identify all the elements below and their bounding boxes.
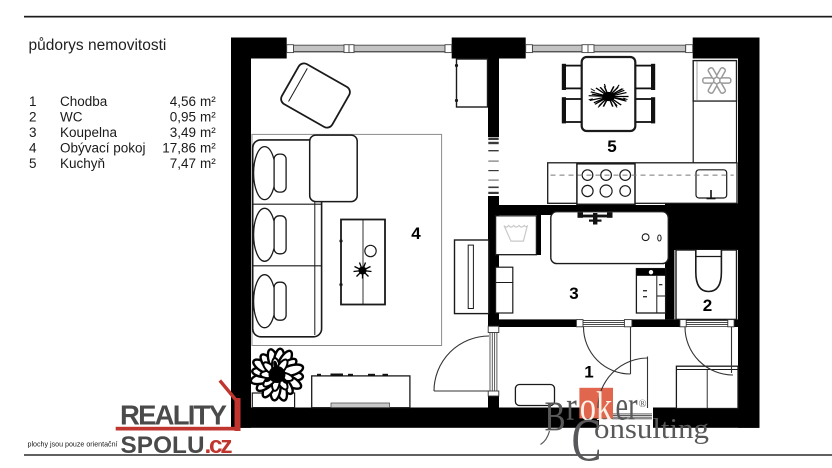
svg-text:Koupelna: Koupelna (60, 125, 118, 140)
svg-text:REALITY: REALITY (120, 400, 227, 431)
svg-text:5: 5 (607, 137, 616, 156)
svg-text:Chodba: Chodba (60, 94, 108, 109)
svg-text:m²: m² (200, 125, 216, 140)
svg-text:3: 3 (569, 284, 578, 303)
svg-text:4: 4 (29, 140, 37, 155)
svg-text:.cz: .cz (205, 432, 233, 459)
svg-text:4: 4 (411, 224, 421, 243)
svg-text:4,56: 4,56 (170, 94, 196, 109)
svg-text:2: 2 (703, 296, 712, 315)
svg-text:1: 1 (29, 94, 37, 109)
svg-text:3,49: 3,49 (170, 125, 196, 140)
svg-text:5: 5 (29, 156, 37, 171)
svg-text:m²: m² (200, 109, 216, 124)
svg-text:1: 1 (584, 363, 593, 382)
svg-text:®: ® (639, 399, 647, 410)
svg-text:SPOLU: SPOLU (121, 432, 205, 459)
svg-text:Kuchyň: Kuchyň (60, 156, 105, 171)
svg-text:17,86: 17,86 (162, 140, 196, 155)
svg-text:plochy jsou pouze orientační: plochy jsou pouze orientační (28, 440, 119, 449)
svg-text:2: 2 (29, 109, 37, 124)
svg-text:WC: WC (60, 109, 83, 124)
svg-text:Obývací pokoj: Obývací pokoj (60, 140, 146, 155)
svg-text:7,47: 7,47 (170, 156, 196, 171)
svg-text:0,95: 0,95 (170, 109, 196, 124)
svg-text:m²: m² (200, 94, 216, 109)
svg-text:B: B (545, 395, 566, 441)
svg-text:onsulting: onsulting (594, 413, 709, 445)
svg-text:půdorys nemovitosti: půdorys nemovitosti (29, 37, 167, 54)
svg-text:3: 3 (29, 125, 37, 140)
svg-text:m²: m² (200, 140, 216, 155)
svg-text:m²: m² (200, 156, 216, 171)
